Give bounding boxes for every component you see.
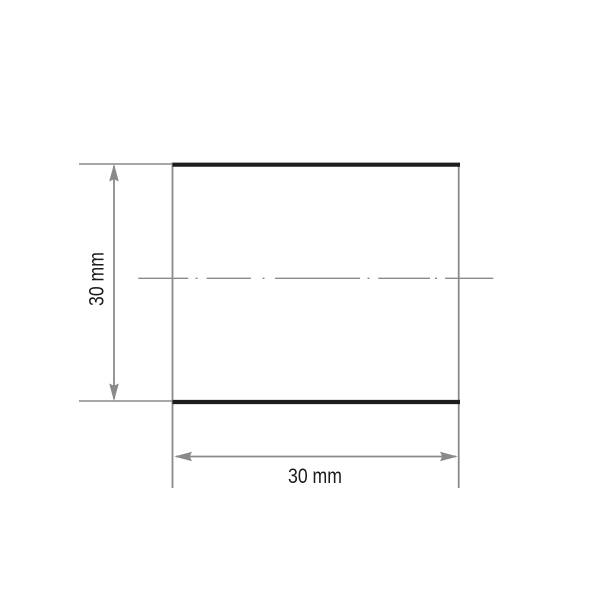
svg-text:30 mm: 30 mm	[288, 464, 342, 488]
svg-text:30 mm: 30 mm	[84, 252, 108, 306]
